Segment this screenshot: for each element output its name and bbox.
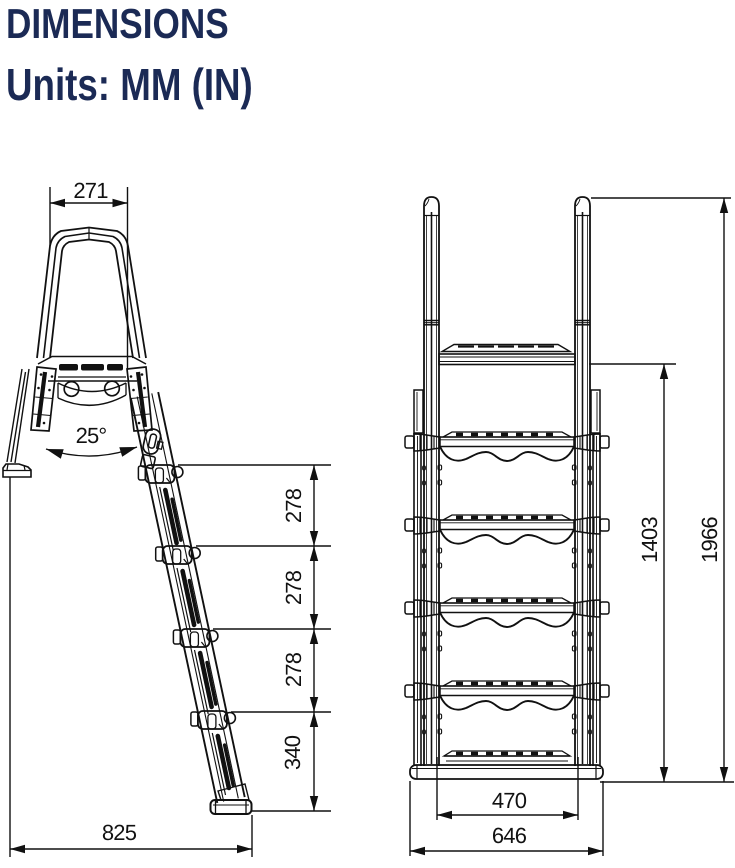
svg-text:DIMENSIONS: DIMENSIONS <box>6 0 229 47</box>
svg-text:340: 340 <box>280 735 305 770</box>
svg-text:278: 278 <box>281 570 306 605</box>
svg-text:1403: 1403 <box>637 517 662 563</box>
svg-text:Units: MM (IN): Units: MM (IN) <box>6 59 253 110</box>
svg-text:470: 470 <box>492 788 527 813</box>
svg-text:1966: 1966 <box>697 517 722 563</box>
svg-text:278: 278 <box>281 488 306 523</box>
svg-text:25°: 25° <box>76 423 107 448</box>
svg-text:825: 825 <box>102 820 137 845</box>
svg-text:646: 646 <box>492 823 527 848</box>
svg-text:271: 271 <box>73 178 108 203</box>
svg-text:278: 278 <box>281 652 306 687</box>
